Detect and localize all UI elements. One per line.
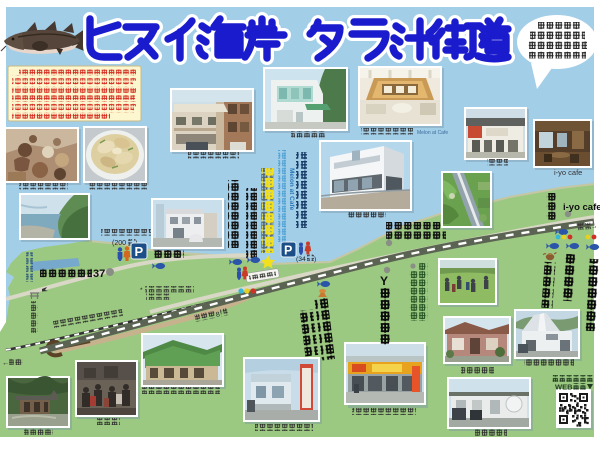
svg-text:37: 37 [93, 268, 105, 280]
svg-text:←: ← [2, 358, 10, 367]
svg-text:P: P [284, 244, 292, 258]
svg-text:→: → [591, 223, 598, 231]
svg-text:WEB: WEB [555, 383, 573, 392]
svg-text:Melon at Cafe: Melon at Cafe [417, 130, 448, 136]
svg-text:i-yo cafe: i-yo cafe [554, 168, 582, 177]
svg-text:i-yo cafe: i-yo cafe [563, 202, 600, 213]
svg-text:(34: (34 [296, 256, 306, 263]
svg-text:P: P [135, 244, 144, 259]
svg-text:): ) [314, 256, 316, 263]
svg-text:(200: (200 [112, 240, 126, 247]
svg-text:Melon at Cafe: Melon at Cafe [288, 168, 295, 211]
svg-text:Y: Y [380, 274, 388, 288]
